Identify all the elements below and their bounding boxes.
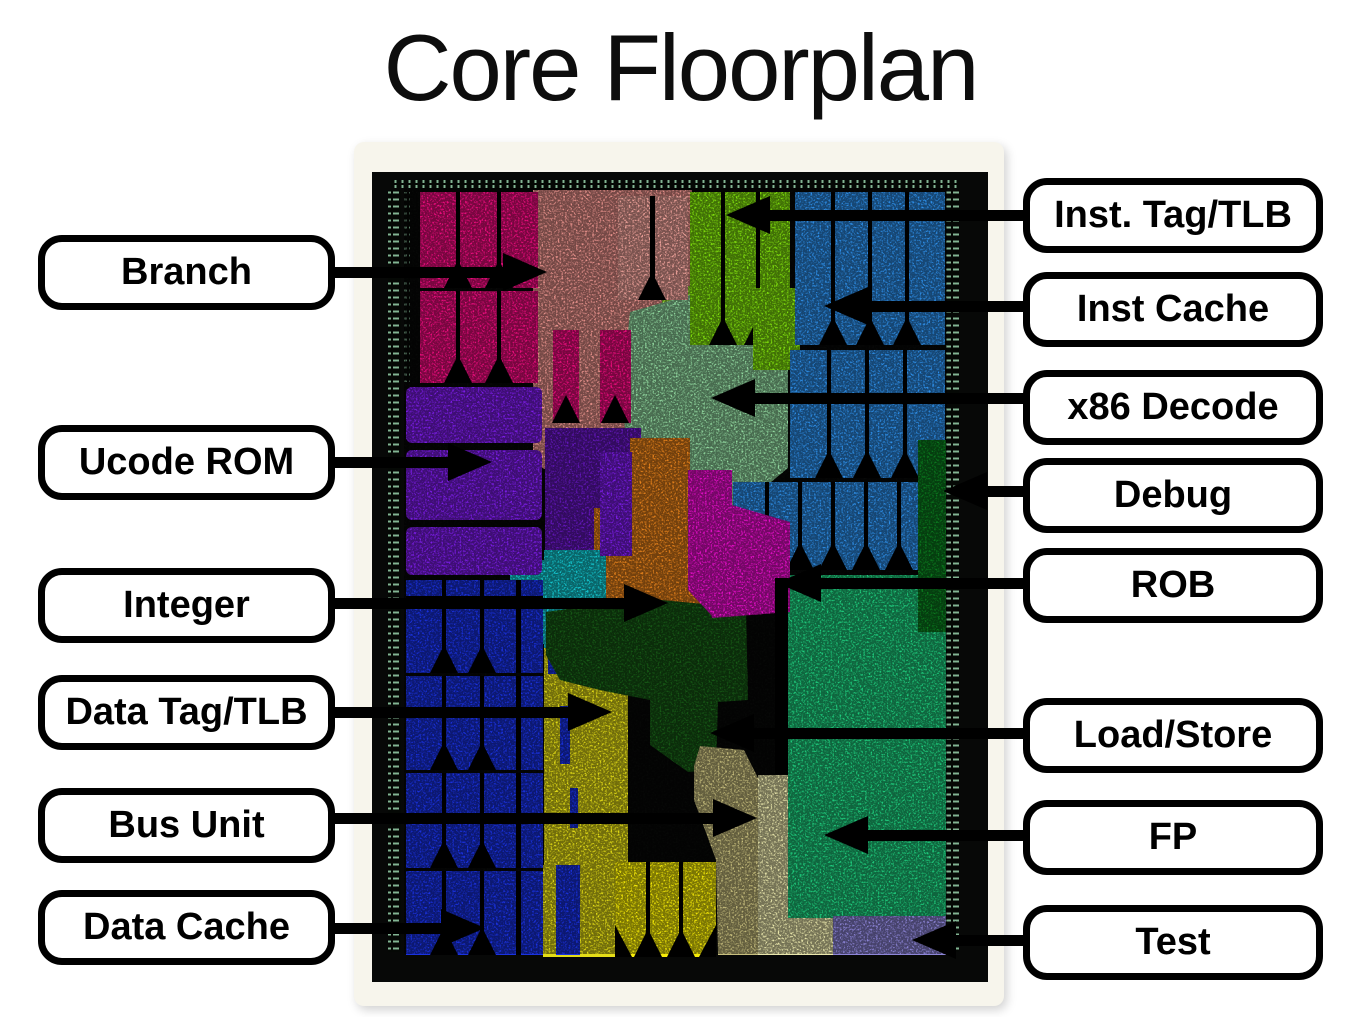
label-bus-unit: Bus Unit	[38, 788, 335, 863]
io-pads-left	[388, 190, 401, 952]
label-ucode-rom: Ucode ROM	[38, 425, 335, 500]
label-data-tag-tlb: Data Tag/TLB	[38, 675, 335, 750]
label-test: Test	[1023, 905, 1323, 980]
label-x86-decode: x86 Decode	[1023, 370, 1323, 445]
label-load-store: Load/Store	[1023, 698, 1323, 773]
io-pads-top	[391, 180, 959, 188]
label-inst-cache: Inst Cache	[1023, 272, 1323, 347]
label-data-cache: Data Cache	[38, 890, 335, 965]
label-integer: Integer	[38, 568, 335, 643]
label-fp: FP	[1023, 800, 1323, 875]
slide: Core Floorplan	[0, 0, 1361, 1017]
label-inst-tag-tlb: Inst. Tag/TLB	[1023, 178, 1323, 253]
label-rob: ROB	[1023, 548, 1323, 623]
label-branch: Branch	[38, 235, 335, 310]
die-image	[372, 172, 988, 982]
label-debug: Debug	[1023, 458, 1323, 533]
